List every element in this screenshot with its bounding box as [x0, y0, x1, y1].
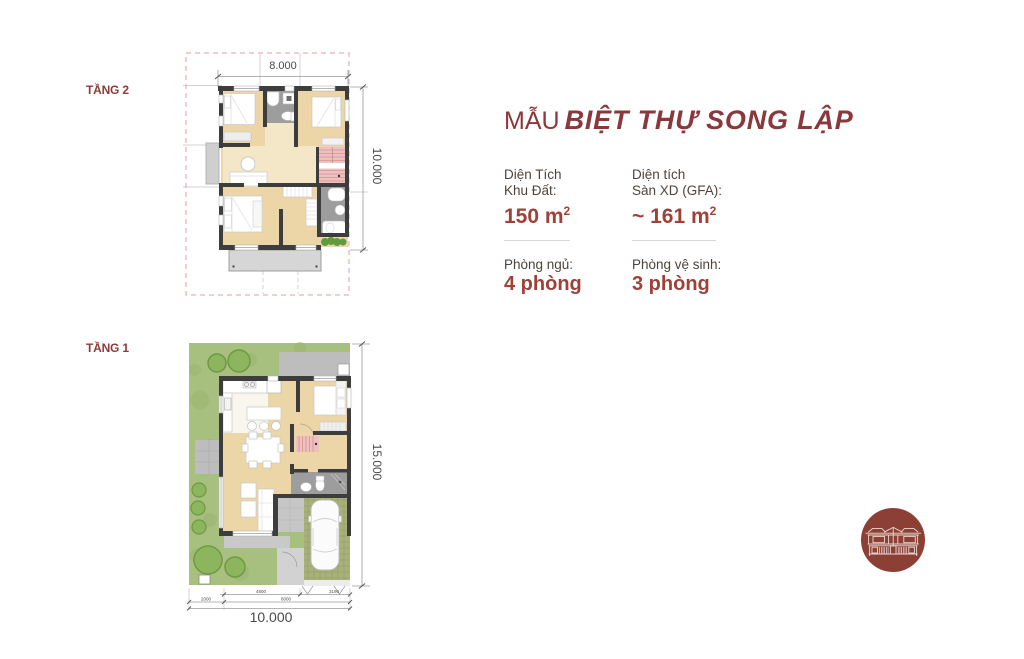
svg-text:10.000: 10.000	[370, 148, 384, 185]
svg-text:8.000: 8.000	[269, 60, 297, 72]
svg-text:3190: 3190	[329, 589, 340, 594]
svg-text:2000: 2000	[201, 597, 212, 602]
svg-text:10.000: 10.000	[250, 609, 293, 625]
svg-text:8000: 8000	[281, 597, 292, 602]
svg-text:4800: 4800	[256, 589, 267, 594]
svg-text:15.000: 15.000	[370, 444, 384, 481]
